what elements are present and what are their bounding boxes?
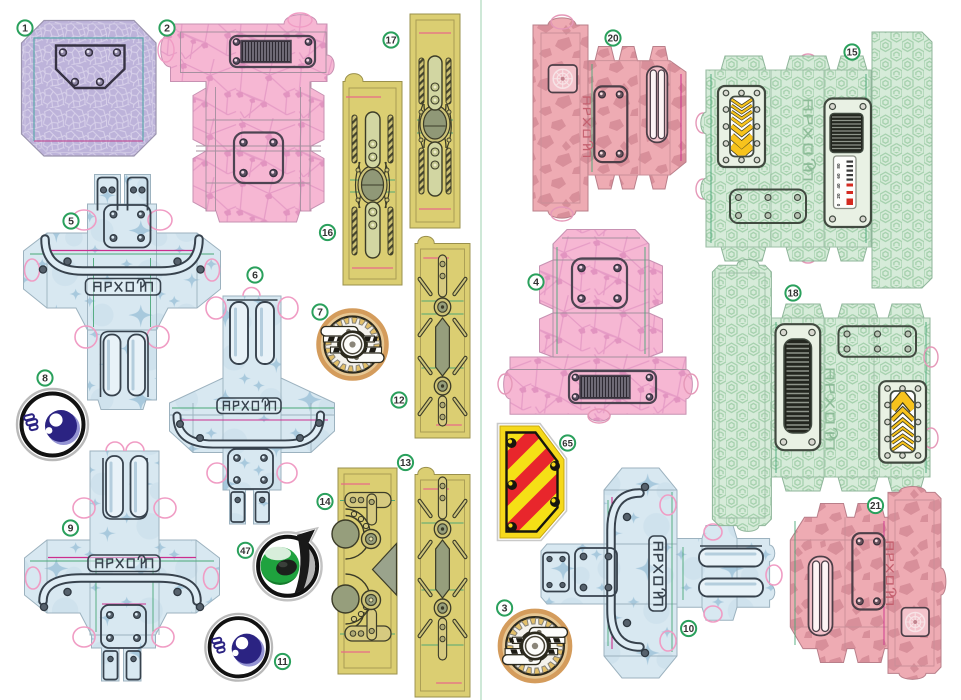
svg-text:17: 17 bbox=[385, 36, 397, 47]
svg-text:1: 1 bbox=[22, 23, 28, 35]
svg-text:21: 21 bbox=[870, 501, 882, 512]
svg-text:80: 80 bbox=[836, 163, 841, 169]
svg-text:13: 13 bbox=[400, 458, 412, 469]
svg-text:18: 18 bbox=[787, 289, 799, 300]
svg-text:65: 65 bbox=[562, 439, 573, 450]
svg-text:6: 6 bbox=[252, 270, 258, 282]
svg-text:5: 5 bbox=[68, 216, 74, 228]
svg-text:16: 16 bbox=[322, 228, 334, 239]
svg-text:8: 8 bbox=[42, 373, 48, 385]
svg-text:40: 40 bbox=[836, 183, 841, 189]
svg-text:3: 3 bbox=[502, 603, 508, 615]
svg-text:20: 20 bbox=[836, 193, 841, 199]
svg-text:20: 20 bbox=[607, 34, 619, 45]
svg-text:4: 4 bbox=[533, 277, 539, 289]
svg-text:12: 12 bbox=[393, 396, 405, 407]
svg-text:7: 7 bbox=[317, 307, 323, 319]
svg-text:9: 9 bbox=[68, 523, 74, 535]
svg-text:14: 14 bbox=[319, 497, 331, 508]
svg-text:0: 0 bbox=[836, 203, 841, 206]
svg-text:15: 15 bbox=[846, 48, 858, 59]
svg-text:47: 47 bbox=[240, 546, 251, 557]
svg-text:60: 60 bbox=[836, 173, 841, 179]
svg-text:11: 11 bbox=[277, 657, 288, 668]
svg-text:2: 2 bbox=[164, 23, 170, 35]
svg-text:10: 10 bbox=[683, 624, 695, 635]
